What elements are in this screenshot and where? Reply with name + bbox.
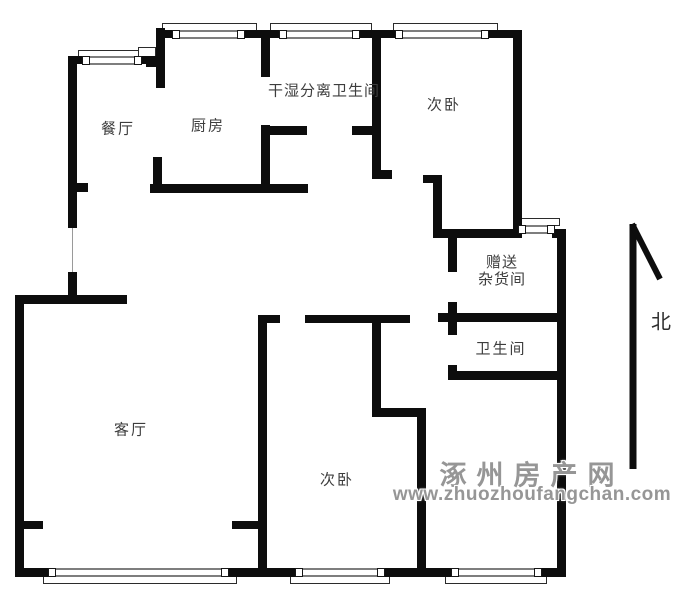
room-label-bathroom: 卫生间 bbox=[475, 338, 526, 359]
room-label-bedroom-bottom: 次卧 bbox=[320, 469, 354, 490]
wall-segment bbox=[68, 56, 77, 228]
wall-segment bbox=[77, 183, 88, 192]
north-label: 北 bbox=[651, 306, 671, 335]
wall-segment bbox=[372, 170, 392, 179]
wall-segment bbox=[232, 521, 258, 529]
room-label-living: 客厅 bbox=[114, 419, 148, 440]
room-label-storage: 赠送 杂货间 bbox=[478, 254, 526, 288]
bay-window-outline bbox=[445, 576, 547, 584]
wall-segment bbox=[150, 184, 308, 193]
wall-segment bbox=[15, 521, 43, 529]
wall-segment bbox=[305, 315, 410, 323]
wall-segment bbox=[261, 33, 270, 77]
wall-segment bbox=[261, 126, 307, 135]
wall-segment bbox=[372, 323, 381, 416]
window bbox=[520, 225, 553, 234]
wall-segment bbox=[352, 126, 381, 135]
floorplan-page: 餐厅 厨房 干湿分离卫生间 次卧 赠送 杂货间 卫生间 客厅 次卧 北 涿州房产… bbox=[0, 0, 683, 600]
room-label-kitchen: 厨房 bbox=[191, 115, 225, 136]
window bbox=[84, 56, 140, 65]
wall-segment bbox=[448, 229, 457, 272]
window bbox=[297, 568, 383, 577]
wall-segment bbox=[540, 568, 566, 577]
window bbox=[281, 30, 358, 39]
wall-segment bbox=[448, 371, 566, 380]
wall-segment bbox=[227, 568, 297, 577]
north-arrow-icon bbox=[600, 213, 683, 483]
window bbox=[397, 30, 487, 39]
room-label-bedroom-top: 次卧 bbox=[427, 94, 461, 115]
window bbox=[453, 568, 540, 577]
watermark-site-url: www.zhuozhoufangchan.com bbox=[393, 484, 671, 506]
room-label-storage-line2: 杂货间 bbox=[478, 271, 526, 288]
bay-window-outline bbox=[43, 576, 237, 584]
window bbox=[174, 30, 243, 39]
wall-segment bbox=[15, 295, 127, 304]
room-label-storage-line1: 赠送 bbox=[478, 254, 526, 271]
opening-line bbox=[72, 228, 73, 273]
wall-segment bbox=[372, 31, 381, 177]
window bbox=[50, 568, 227, 577]
wall-segment bbox=[438, 313, 566, 322]
wall-segment bbox=[146, 57, 157, 67]
wall-segment bbox=[513, 30, 522, 238]
wall-segment bbox=[557, 229, 566, 577]
wall-segment bbox=[383, 568, 453, 577]
room-label-dry-wet-bathroom: 干湿分离卫生间 bbox=[268, 80, 380, 101]
wall-segment bbox=[261, 125, 270, 192]
room-label-dining: 餐厅 bbox=[101, 118, 135, 139]
bay-window-outline bbox=[290, 576, 390, 584]
wall-segment bbox=[258, 315, 267, 577]
wall-segment bbox=[15, 295, 24, 577]
wall-segment bbox=[433, 229, 521, 238]
